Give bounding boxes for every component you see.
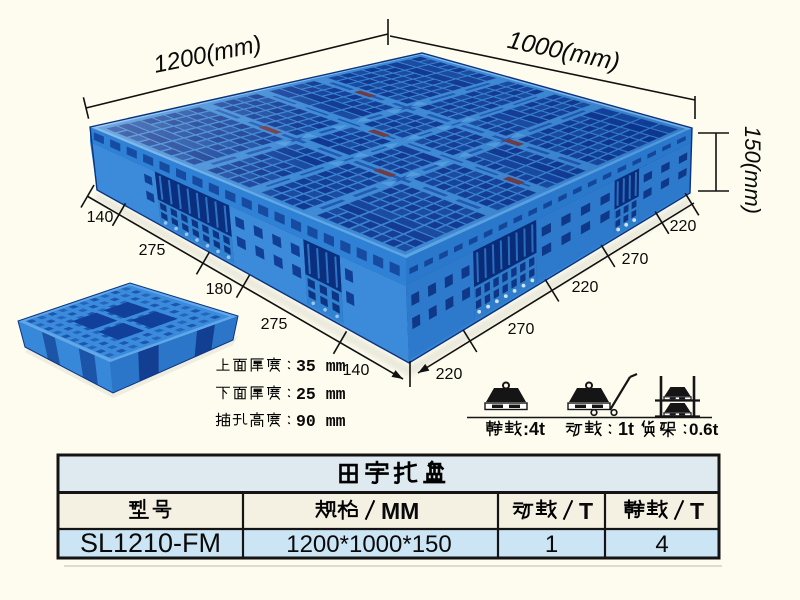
svg-text:4: 4 (655, 531, 668, 558)
svg-text:220: 220 (572, 279, 599, 296)
svg-text:140: 140 (87, 209, 114, 226)
svg-text:90 mm: 90 mm (296, 412, 346, 431)
svg-text:220: 220 (436, 366, 463, 383)
svg-text:140: 140 (343, 362, 370, 379)
svg-text:270: 270 (622, 251, 649, 268)
svg-text:1200*1000*150: 1200*1000*150 (286, 531, 452, 558)
svg-text:180: 180 (206, 281, 233, 298)
svg-text:1t: 1t (618, 419, 634, 439)
svg-text:SL1210-FM: SL1210-FM (80, 528, 221, 558)
svg-text:MM: MM (381, 498, 419, 524)
svg-text::4t: :4t (523, 419, 545, 439)
svg-text:35 mm: 35 mm (296, 357, 346, 376)
svg-text:275: 275 (139, 242, 166, 259)
svg-text:T: T (690, 498, 704, 524)
svg-text:220: 220 (670, 218, 697, 235)
svg-text:150(mm): 150(mm) (740, 126, 765, 214)
svg-text:25 mm: 25 mm (296, 385, 346, 404)
svg-text:1: 1 (545, 531, 558, 558)
svg-text:0.6t: 0.6t (689, 420, 719, 439)
svg-text:270: 270 (508, 321, 535, 338)
svg-text:275: 275 (261, 316, 288, 333)
svg-text:T: T (579, 498, 593, 524)
